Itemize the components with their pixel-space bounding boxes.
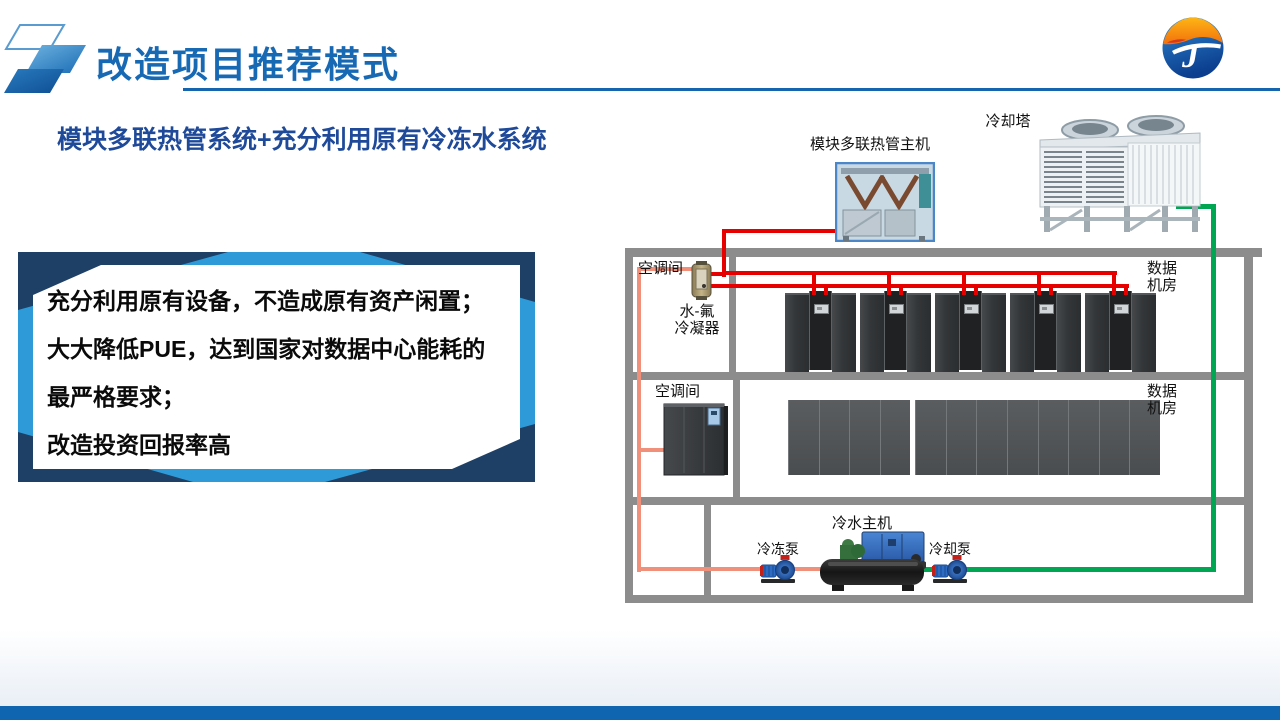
- refrigerant-pipe-drop: [812, 273, 816, 295]
- rack-row-room2: [788, 400, 1160, 475]
- data-room2-label-line2: 机房: [1140, 400, 1184, 417]
- refrigerant-pipe-drop: [962, 273, 966, 295]
- server-rack: [1132, 293, 1156, 372]
- chiller-label: 冷水主机: [812, 512, 912, 533]
- rack-group: [785, 293, 856, 372]
- server-rack: [819, 400, 850, 475]
- cooler-display-panel: [1039, 304, 1054, 314]
- refrigerant-pipe-segment: [722, 271, 1117, 275]
- wall-segment: [625, 497, 1253, 505]
- wall-segment: [625, 248, 633, 603]
- data-room1-label-line1: 数据: [1140, 260, 1184, 277]
- wall-segment: [704, 503, 711, 597]
- rack-group: [860, 293, 931, 372]
- data-room2-label-line1: 数据: [1140, 383, 1184, 400]
- cooling-tower-image: [1032, 114, 1208, 242]
- server-rack: [1085, 293, 1109, 372]
- heat-pipe-unit-image: [835, 162, 935, 242]
- server-rack: [935, 293, 959, 372]
- footer-bar: [0, 706, 1280, 720]
- cooler-display-panel: [889, 304, 904, 314]
- server-rack: [1010, 293, 1034, 372]
- server-rack: [785, 293, 809, 372]
- refrigerant-pipe-segment: [710, 284, 1129, 288]
- server-rack: [915, 400, 946, 475]
- wall-segment: [1244, 248, 1253, 603]
- ac-room1-label: 空调间: [638, 257, 683, 278]
- refrigerant-pipe-drop: [899, 286, 903, 295]
- refrigerant-pipe-drop: [1049, 286, 1053, 295]
- server-rack: [1068, 400, 1099, 475]
- server-rack: [1057, 293, 1081, 372]
- cooling-water-pipe-segment: [1211, 204, 1216, 572]
- wall-segment: [625, 595, 1253, 603]
- rack-row-room1: [785, 293, 1156, 372]
- inrow-cooling-unit: [959, 291, 982, 370]
- heat-pipe-unit-label: 模块多联热管主机: [790, 133, 950, 154]
- server-rack: [880, 400, 911, 475]
- server-rack: [788, 400, 819, 475]
- company-logo: J: [1160, 15, 1226, 81]
- wall-segment: [733, 378, 740, 501]
- chilled-water-pipe-segment: [637, 267, 641, 572]
- refrigerant-pipe-drop: [1124, 286, 1128, 295]
- inrow-cooling-unit: [809, 291, 832, 370]
- server-rack: [849, 400, 880, 475]
- diagram: 模块多联热管主机 冷却塔 空调间 水-氟 冷凝器 数据 机房 空调间 数据 机房…: [0, 0, 1280, 720]
- crac-unit-image: [663, 402, 728, 477]
- rack-group: [1010, 293, 1081, 372]
- server-rack: [860, 293, 884, 372]
- ac-room2-label: 空调间: [655, 380, 700, 401]
- slide: 改造项目推荐模式 J 模块多联热管系统+充分利用原有冷冻水系统 充分利用原有设备…: [0, 0, 1280, 720]
- refrigerant-pipe-drop: [887, 273, 891, 295]
- condenser-label-line1: 水-氟: [662, 303, 732, 320]
- server-rack: [832, 293, 856, 372]
- server-rack: [1038, 400, 1069, 475]
- refrigerant-pipe-drop: [1037, 273, 1041, 295]
- refrigerant-pipe-drop: [824, 286, 828, 295]
- cooler-display-panel: [1114, 304, 1129, 314]
- chilled-pump-label: 冷冻泵: [748, 539, 808, 559]
- inrow-cooling-unit: [1034, 291, 1057, 370]
- inrow-cooling-unit: [884, 291, 907, 370]
- refrigerant-pipe-segment: [722, 229, 726, 277]
- condenser-label-line2: 冷凝器: [662, 320, 732, 337]
- refrigerant-pipe-segment: [722, 229, 839, 233]
- header-decoration: [4, 22, 104, 94]
- water-fluorine-condenser-image: [691, 261, 712, 300]
- rack-group: [1085, 293, 1156, 372]
- refrigerant-pipe-drop: [974, 286, 978, 295]
- chiller-image: [818, 531, 926, 592]
- server-rack: [946, 400, 977, 475]
- inrow-cooling-unit: [1109, 291, 1132, 370]
- wall-segment: [625, 372, 1253, 380]
- server-rack: [982, 293, 1006, 372]
- rack-group: [935, 293, 1006, 372]
- wall-segment: [625, 248, 1262, 257]
- data-room1-label-line2: 机房: [1140, 277, 1184, 294]
- cooler-display-panel: [964, 304, 979, 314]
- refrigerant-pipe-drop: [1112, 273, 1116, 295]
- cooling-tower-label: 冷却塔: [975, 110, 1041, 131]
- logo-letter: J: [1181, 38, 1200, 75]
- background-fade: [0, 630, 1280, 706]
- server-rack: [1099, 400, 1130, 475]
- server-rack: [1007, 400, 1038, 475]
- cooling-pump-label: 冷却泵: [920, 539, 980, 559]
- server-rack: [976, 400, 1007, 475]
- cooler-display-panel: [814, 304, 829, 314]
- server-rack: [907, 293, 931, 372]
